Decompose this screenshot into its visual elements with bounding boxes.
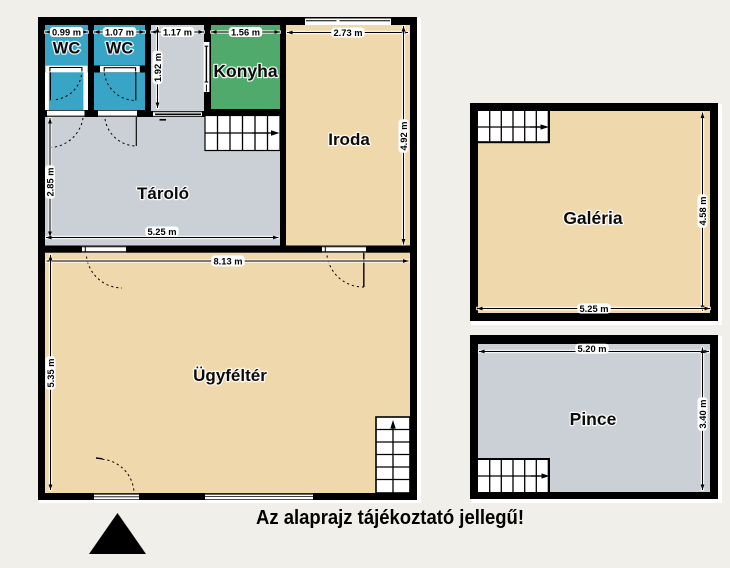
svg-text:5.20 m: 5.20 m [578,344,607,354]
svg-text:2.73 m: 2.73 m [334,28,363,38]
svg-text:5.25 m: 5.25 m [580,304,609,314]
svg-text:WC: WC [106,40,134,58]
svg-text:1.17 m: 1.17 m [163,27,192,37]
svg-text:1.56 m: 1.56 m [231,27,260,37]
svg-text:Tároló: Tároló [137,184,189,203]
svg-text:Konyha: Konyha [213,61,277,81]
svg-text:WC: WC [53,40,81,58]
svg-text:Ügyféltér: Ügyféltér [193,366,267,385]
svg-text:2.85 m: 2.85 m [45,168,55,197]
svg-text:Az alaprajz tájékoztató jelleg: Az alaprajz tájékoztató jellegű! [256,507,524,529]
svg-text:5.25 m: 5.25 m [148,227,177,237]
svg-text:4.58 m: 4.58 m [698,197,708,226]
svg-text:Iroda: Iroda [328,130,370,149]
svg-text:1.92 m: 1.92 m [153,53,163,82]
svg-text:Pince: Pince [570,409,617,429]
svg-text:Galéria: Galéria [563,208,623,228]
svg-text:4.92 m: 4.92 m [399,122,409,151]
svg-text:3.40 m: 3.40 m [698,400,708,429]
svg-text:1.07 m: 1.07 m [105,27,134,37]
svg-text:0.99 m: 0.99 m [52,27,81,37]
svg-text:5.35 m: 5.35 m [46,359,56,388]
svg-text:8.13 m: 8.13 m [214,256,243,266]
